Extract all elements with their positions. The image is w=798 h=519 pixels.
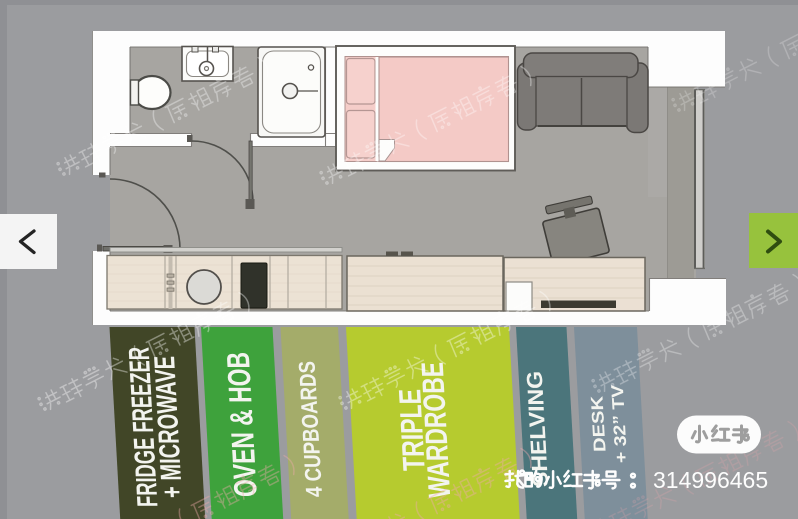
- svg-text:314996465: 314996465: [653, 467, 768, 493]
- svg-text:DESK: DESK: [587, 395, 609, 452]
